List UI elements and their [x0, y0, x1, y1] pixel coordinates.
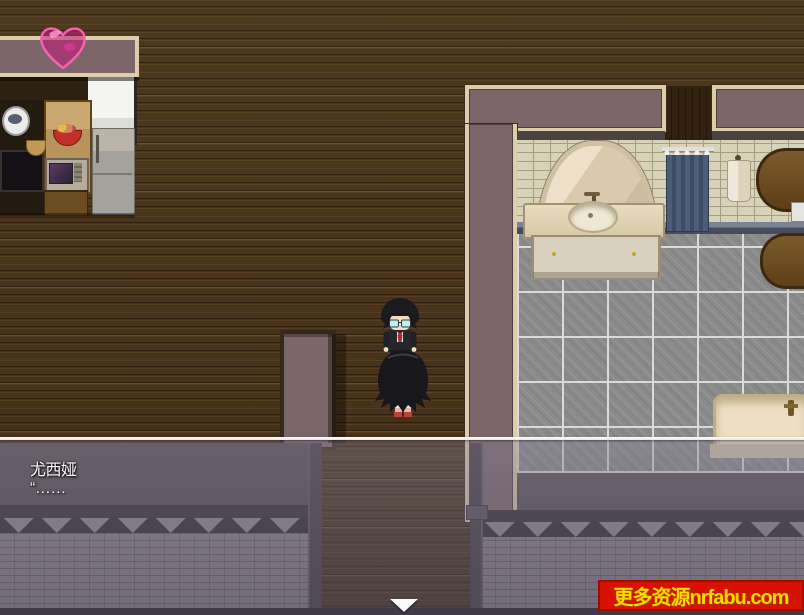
kitchen-lower-cabinet	[44, 190, 88, 215]
game-screen: 尤西娅 “…… 更多资源nrfabu.com	[0, 0, 804, 615]
kitchen-floor-shadow	[0, 213, 135, 218]
watermark-banner[interactable]: 更多资源nrfabu.com	[598, 580, 804, 611]
cabinet-knob-icon	[552, 252, 556, 256]
hanging-towel	[727, 160, 751, 202]
wooden-cabinet-lower	[760, 233, 804, 289]
refrigerator	[92, 128, 135, 215]
fridge-handle	[96, 135, 99, 163]
shower-curtain	[666, 155, 709, 232]
tub-faucet-handle-icon	[784, 404, 798, 408]
sink-drain-icon	[588, 213, 593, 218]
microwave	[45, 158, 89, 192]
character-long-haired-girl[interactable]	[370, 348, 436, 420]
vanity-cabinet	[531, 235, 661, 280]
plate-fish-icon	[8, 114, 22, 124]
faucet-spout-icon	[584, 192, 600, 196]
continue-arrow-icon[interactable]	[390, 599, 418, 612]
fridge-divider	[93, 173, 132, 175]
microwave-window	[49, 163, 73, 184]
dialogue-speaker-name: 尤西娅	[30, 456, 77, 480]
affection-heart-icon	[36, 22, 90, 72]
microwave-buttons	[74, 163, 82, 182]
sink-basin	[568, 201, 618, 233]
tub-faucet-icon	[788, 400, 794, 416]
bathroom-doorway	[665, 87, 712, 147]
dialogue-line: “……	[30, 480, 66, 498]
small-sign-icon	[791, 202, 804, 222]
fruit-icon	[56, 124, 76, 133]
bathroom-wall-topright	[712, 85, 804, 132]
cabinet-knob-icon	[632, 252, 636, 256]
pillar-shadow	[328, 334, 346, 443]
dialogue-box-border	[0, 437, 804, 440]
stove-icon	[0, 150, 44, 192]
